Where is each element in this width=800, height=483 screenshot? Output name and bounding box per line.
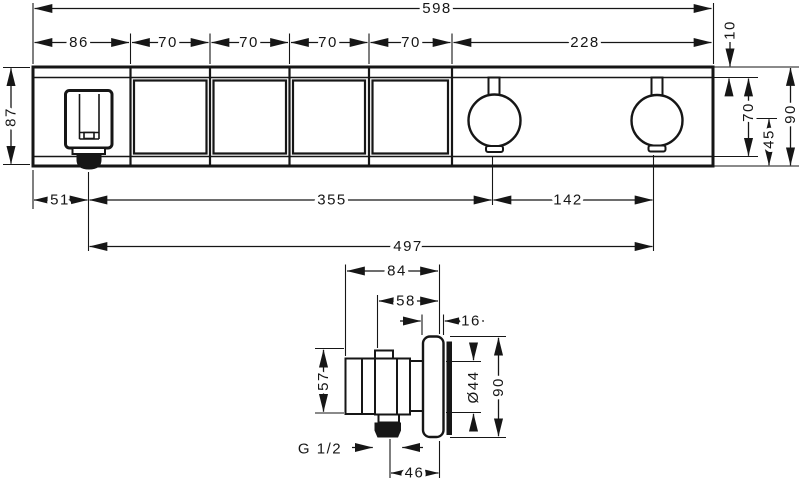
dim-45: 45 — [761, 119, 778, 165]
dim-diameter-44: Ø44 — [465, 343, 482, 431]
drawing-page: 598 86 70 70 70 70 228 — [0, 0, 800, 483]
dim-label-58: 58 — [396, 293, 416, 310]
dim-label-51: 51 — [50, 192, 70, 209]
dim-10: 10 — [722, 20, 739, 95]
dim-label-70-seg3: 70 — [318, 34, 338, 51]
select-button-4 — [373, 81, 449, 154]
select-button-2 — [214, 81, 287, 154]
dim-70-right: 70 — [740, 79, 757, 156]
escutcheon-rim — [447, 342, 453, 436]
dim-70-seg1: 70 — [132, 34, 209, 51]
valve-neck — [379, 415, 400, 423]
dim-label-86: 86 — [69, 34, 89, 51]
trim-plate-front-view — [33, 67, 713, 170]
dim-90-side: 90 — [490, 338, 507, 436]
dim-label-g12: G 1/2 — [298, 441, 342, 458]
dim-70-seg4: 70 — [371, 34, 451, 51]
dim-label-70-seg1: 70 — [158, 34, 178, 51]
dim-label-598: 598 — [422, 0, 452, 17]
dim-16: 16 — [400, 313, 484, 330]
dim-label-87: 87 — [3, 107, 20, 127]
handshower-holder — [66, 91, 113, 155]
dim-598: 598 — [35, 0, 712, 17]
dim-228: 228 — [454, 34, 712, 51]
valve-spacer — [410, 361, 423, 411]
dim-142: 142 — [494, 192, 653, 209]
dim-label-355: 355 — [317, 192, 347, 209]
dim-90-right: 90 — [782, 68, 799, 165]
dim-84: 84 — [347, 263, 438, 280]
dim-label-57: 57 — [315, 371, 332, 391]
dim-label-228: 228 — [570, 34, 600, 51]
dim-497: 497 — [90, 238, 653, 255]
dim-label-70-right: 70 — [740, 102, 757, 122]
valve-top-step — [375, 351, 393, 359]
select-button-3 — [293, 81, 365, 154]
dim-label-70-seg2: 70 — [239, 34, 259, 51]
dim-label-84: 84 — [387, 263, 407, 280]
dim-label-46: 46 — [405, 465, 425, 482]
dim-51: 51 — [34, 192, 88, 209]
dim-label-45: 45 — [761, 129, 778, 149]
dim-g12: G 1/2 — [298, 441, 423, 458]
outlet-nozzle — [77, 154, 102, 170]
escutcheon-disc — [423, 337, 444, 438]
dim-86: 86 — [35, 34, 130, 51]
dim-label-70-seg4: 70 — [401, 34, 421, 51]
technical-drawing: 598 86 70 70 70 70 228 — [0, 0, 800, 483]
g12-pipe — [375, 423, 402, 438]
dim-label-diameter-44: Ø44 — [465, 371, 482, 404]
dim-58: 58 — [379, 293, 438, 310]
dim-label-16: 16 — [461, 313, 481, 330]
dim-label-10: 10 — [722, 20, 739, 40]
dim-46: 46 — [391, 465, 439, 482]
dim-label-90-side: 90 — [490, 377, 507, 397]
valve-rear-block — [346, 359, 376, 415]
valve-body — [375, 359, 410, 415]
dim-70-seg3: 70 — [291, 34, 368, 51]
select-button-1 — [134, 81, 207, 154]
dim-label-142: 142 — [553, 192, 583, 209]
valve-side-view — [346, 337, 453, 438]
dim-label-497: 497 — [393, 238, 423, 255]
dim-57: 57 — [315, 350, 332, 412]
dim-label-90-right: 90 — [782, 104, 799, 124]
dim-355: 355 — [90, 192, 492, 209]
dim-70-seg2: 70 — [212, 34, 289, 51]
dim-87: 87 — [3, 68, 31, 165]
